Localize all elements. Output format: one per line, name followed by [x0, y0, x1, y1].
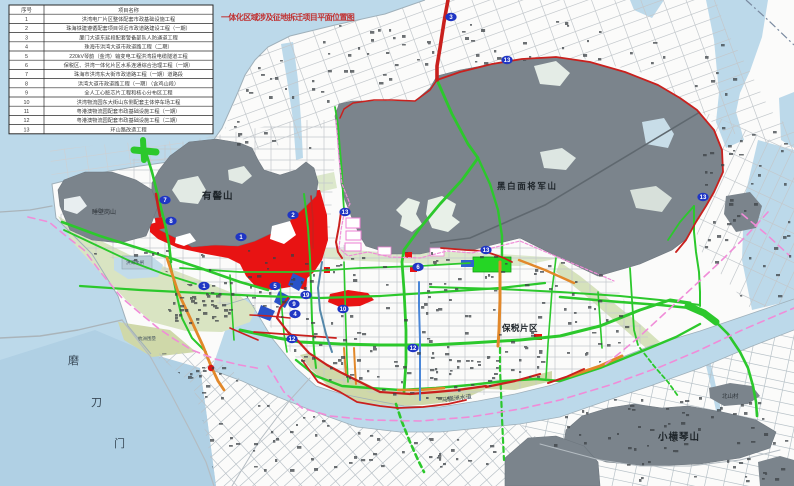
svg-text:3: 3: [25, 35, 28, 41]
svg-text:序号: 序号: [21, 6, 32, 14]
svg-text:19: 19: [303, 293, 310, 299]
svg-text:全人工心脏芯片工程和核心分布区工程: 全人工心脏芯片工程和核心分布区工程: [84, 89, 172, 97]
svg-text:有髻山: 有髻山: [202, 190, 234, 202]
svg-text:13: 13: [483, 248, 490, 254]
svg-text:2: 2: [25, 26, 28, 32]
svg-text:洪湾电厂片区整体配套市政基础设施工程: 洪湾电厂片区整体配套市政基础设施工程: [82, 15, 175, 23]
svg-text:厦门大道东延段配套警备部队人防通道工程: 厦门大道东延段配套警备部队人防通道工程: [79, 33, 178, 41]
svg-text:5: 5: [25, 54, 28, 60]
svg-text:13: 13: [700, 195, 707, 201]
svg-text:8: 8: [25, 81, 28, 87]
svg-text:洪湾大道市政道路工程（一期）（含鸡山段）: 洪湾大道市政道路工程（一期）（含鸡山段）: [78, 79, 179, 87]
svg-text:洪湾水闸: 洪湾水闸: [126, 259, 144, 266]
svg-text:环山路改造工程: 环山路改造工程: [110, 125, 146, 133]
svg-text:12: 12: [410, 346, 417, 352]
svg-text:10: 10: [340, 307, 347, 313]
svg-text:1: 1: [25, 17, 28, 23]
svg-text:北山村: 北山村: [722, 392, 739, 400]
svg-text:刀: 刀: [91, 397, 102, 409]
svg-text:4: 4: [25, 45, 28, 51]
svg-text:门: 门: [114, 436, 125, 450]
svg-text:洪湾物流园东大街山东侧配套主体停车场工程: 洪湾物流园东大街山东侧配套主体停车场工程: [77, 98, 181, 106]
svg-text:220kV琴韵（金湾）输变电工程洪湾段电缆隧道工程: 220kV琴韵（金湾）输变电工程洪湾段电缆隧道工程: [69, 52, 187, 60]
svg-text:粤港澳物流园配套市政基础设施工程（二期）: 粤港澳物流园配套市政基础设施工程（二期）: [77, 116, 181, 124]
svg-text:粤港澳物流园配套市政基础设施工程（一期）: 粤港澳物流园配套市政基础设施工程（一期）: [77, 107, 181, 115]
svg-text:磨: 磨: [68, 354, 79, 367]
svg-text:一体化区域涉及征地拆迁项目平面位置图: 一体化区域涉及征地拆迁项目平面位置图: [221, 12, 355, 22]
svg-text:杭洲围垦: 杭洲围垦: [138, 335, 156, 342]
svg-text:黑白面将军山: 黑白面将军山: [497, 181, 558, 191]
svg-text:7: 7: [25, 72, 28, 78]
svg-text:13: 13: [342, 210, 349, 216]
svg-text:9: 9: [25, 91, 28, 97]
svg-text:珠海铁建遵循配套项目邻近市政道路建设工程（一期）: 珠海铁建遵循配套项目邻近市政道路建设工程（一期）: [66, 24, 191, 32]
svg-text:12: 12: [289, 337, 296, 343]
svg-text:13: 13: [504, 58, 511, 64]
svg-text:睡壁岗山: 睡壁岗山: [92, 208, 116, 216]
svg-text:13: 13: [24, 127, 30, 133]
svg-text:珠海市洪湾东大街市政道路工程（一期）道路段: 珠海市洪湾东大街市政道路工程（一期）道路段: [74, 70, 183, 78]
svg-text:保税区、洪湾一体化片区水系连通综合治理工程（一期）: 保税区、洪湾一体化片区水系连通综合治理工程（一期）: [64, 61, 194, 69]
svg-text:12: 12: [24, 118, 30, 124]
svg-text:小横琴山: 小横琴山: [657, 431, 700, 443]
svg-text:珠海市洪湾大道市政道路工程（二期）: 珠海市洪湾大道市政道路工程（二期）: [84, 43, 172, 51]
svg-text:11: 11: [24, 109, 30, 115]
svg-text:10: 10: [24, 100, 30, 106]
svg-text:项目名称: 项目名称: [118, 6, 139, 14]
svg-text:保税片区: 保税片区: [501, 323, 538, 333]
svg-text:6: 6: [25, 63, 28, 69]
